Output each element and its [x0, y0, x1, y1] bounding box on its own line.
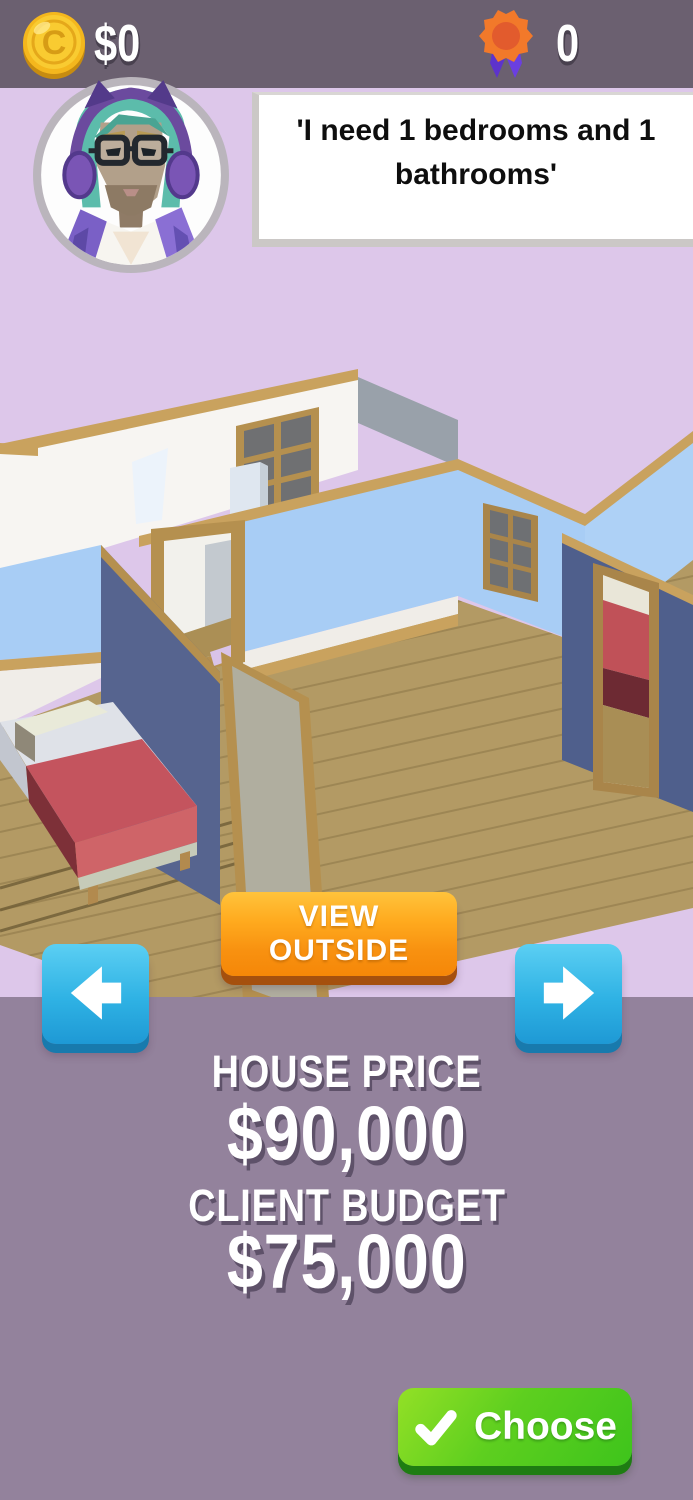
- check-icon: [413, 1404, 459, 1450]
- next-house-button[interactable]: [515, 944, 622, 1044]
- choose-button-label: Choose: [474, 1405, 617, 1449]
- awards-value: 0: [556, 10, 585, 78]
- choose-button[interactable]: Choose: [398, 1388, 632, 1466]
- previous-house-button[interactable]: [42, 944, 149, 1044]
- client-speech-text: 'I need 1 bedrooms and 1 bathrooms': [276, 109, 676, 239]
- client-speech-bubble: 'I need 1 bedrooms and 1 bathrooms': [252, 92, 693, 247]
- rosette-ribbon-icon: [476, 6, 536, 82]
- arrow-right-icon: [532, 956, 606, 1033]
- client-avatar: [30, 72, 232, 274]
- coins-value: $0: [94, 10, 152, 78]
- arrow-left-icon: [59, 956, 133, 1033]
- client-budget-value: $75,000: [0, 1218, 693, 1307]
- view-outside-button[interactable]: VIEW OUTSIDE: [221, 892, 457, 976]
- house-price-value: $90,000: [0, 1090, 693, 1179]
